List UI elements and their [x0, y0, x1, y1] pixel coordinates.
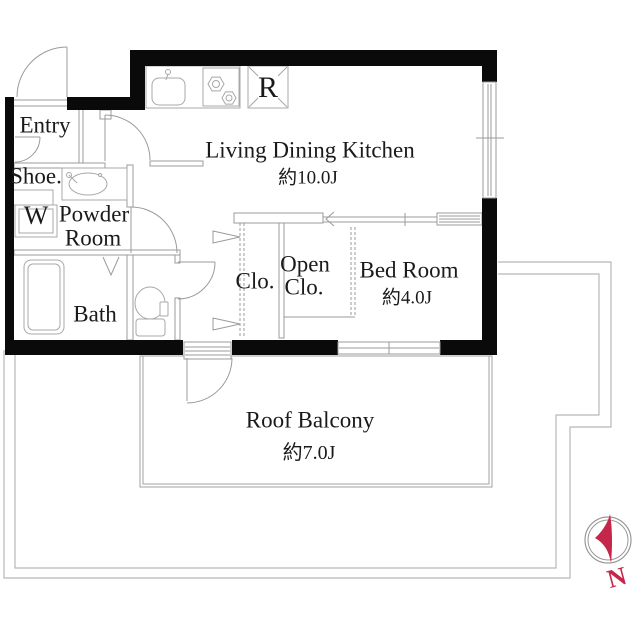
refrigerator-label: R [258, 73, 278, 103]
balcony-door [187, 358, 232, 403]
shoe-closet-door [15, 137, 40, 162]
compass-needle-icon [595, 514, 612, 563]
room-label-balcony: Roof Balcony [246, 409, 374, 432]
kitchen-counter [146, 66, 240, 108]
room-label-powder-room2: Room [65, 227, 121, 250]
washbasin-icon [62, 168, 127, 200]
room-label-ldk: Living Dining Kitchen [205, 139, 415, 162]
compass [585, 514, 631, 563]
room-size-bedroom: 約4.0J [382, 289, 432, 308]
room-label-closet: Clo. [236, 270, 275, 293]
sliding-partition [323, 212, 482, 226]
room-label-washer: W [24, 203, 49, 229]
bath-folding-door [103, 257, 119, 275]
bathtub-icon [24, 260, 64, 334]
room-label-bath: Bath [73, 303, 116, 326]
room-label-open-closet2: Clo. [285, 276, 324, 299]
room-size-ldk: 約10.0J [278, 169, 338, 188]
powder-room-door [131, 207, 177, 253]
room-label-entry: Entry [19, 114, 70, 137]
bedroom-window [338, 342, 440, 354]
toilet-door [178, 262, 215, 299]
ldk-door [105, 115, 150, 161]
floorplan-canvas: Entry Shoe. W Powder Room Bath Living Di… [0, 0, 639, 640]
room-label-shoe: Shoe. [10, 165, 62, 188]
room-label-powder-room: Powder [59, 203, 129, 226]
entry-threshold [14, 100, 67, 106]
right-window [476, 82, 504, 198]
room-label-open-closet: Open [280, 253, 330, 276]
entry-step-line [79, 110, 83, 163]
room-label-bedroom: Bed Room [359, 259, 458, 282]
balcony-threshold [184, 342, 231, 359]
entry-door [17, 47, 67, 97]
room-size-balcony: 約7.0J [283, 443, 336, 463]
toilet-icon [135, 287, 168, 336]
